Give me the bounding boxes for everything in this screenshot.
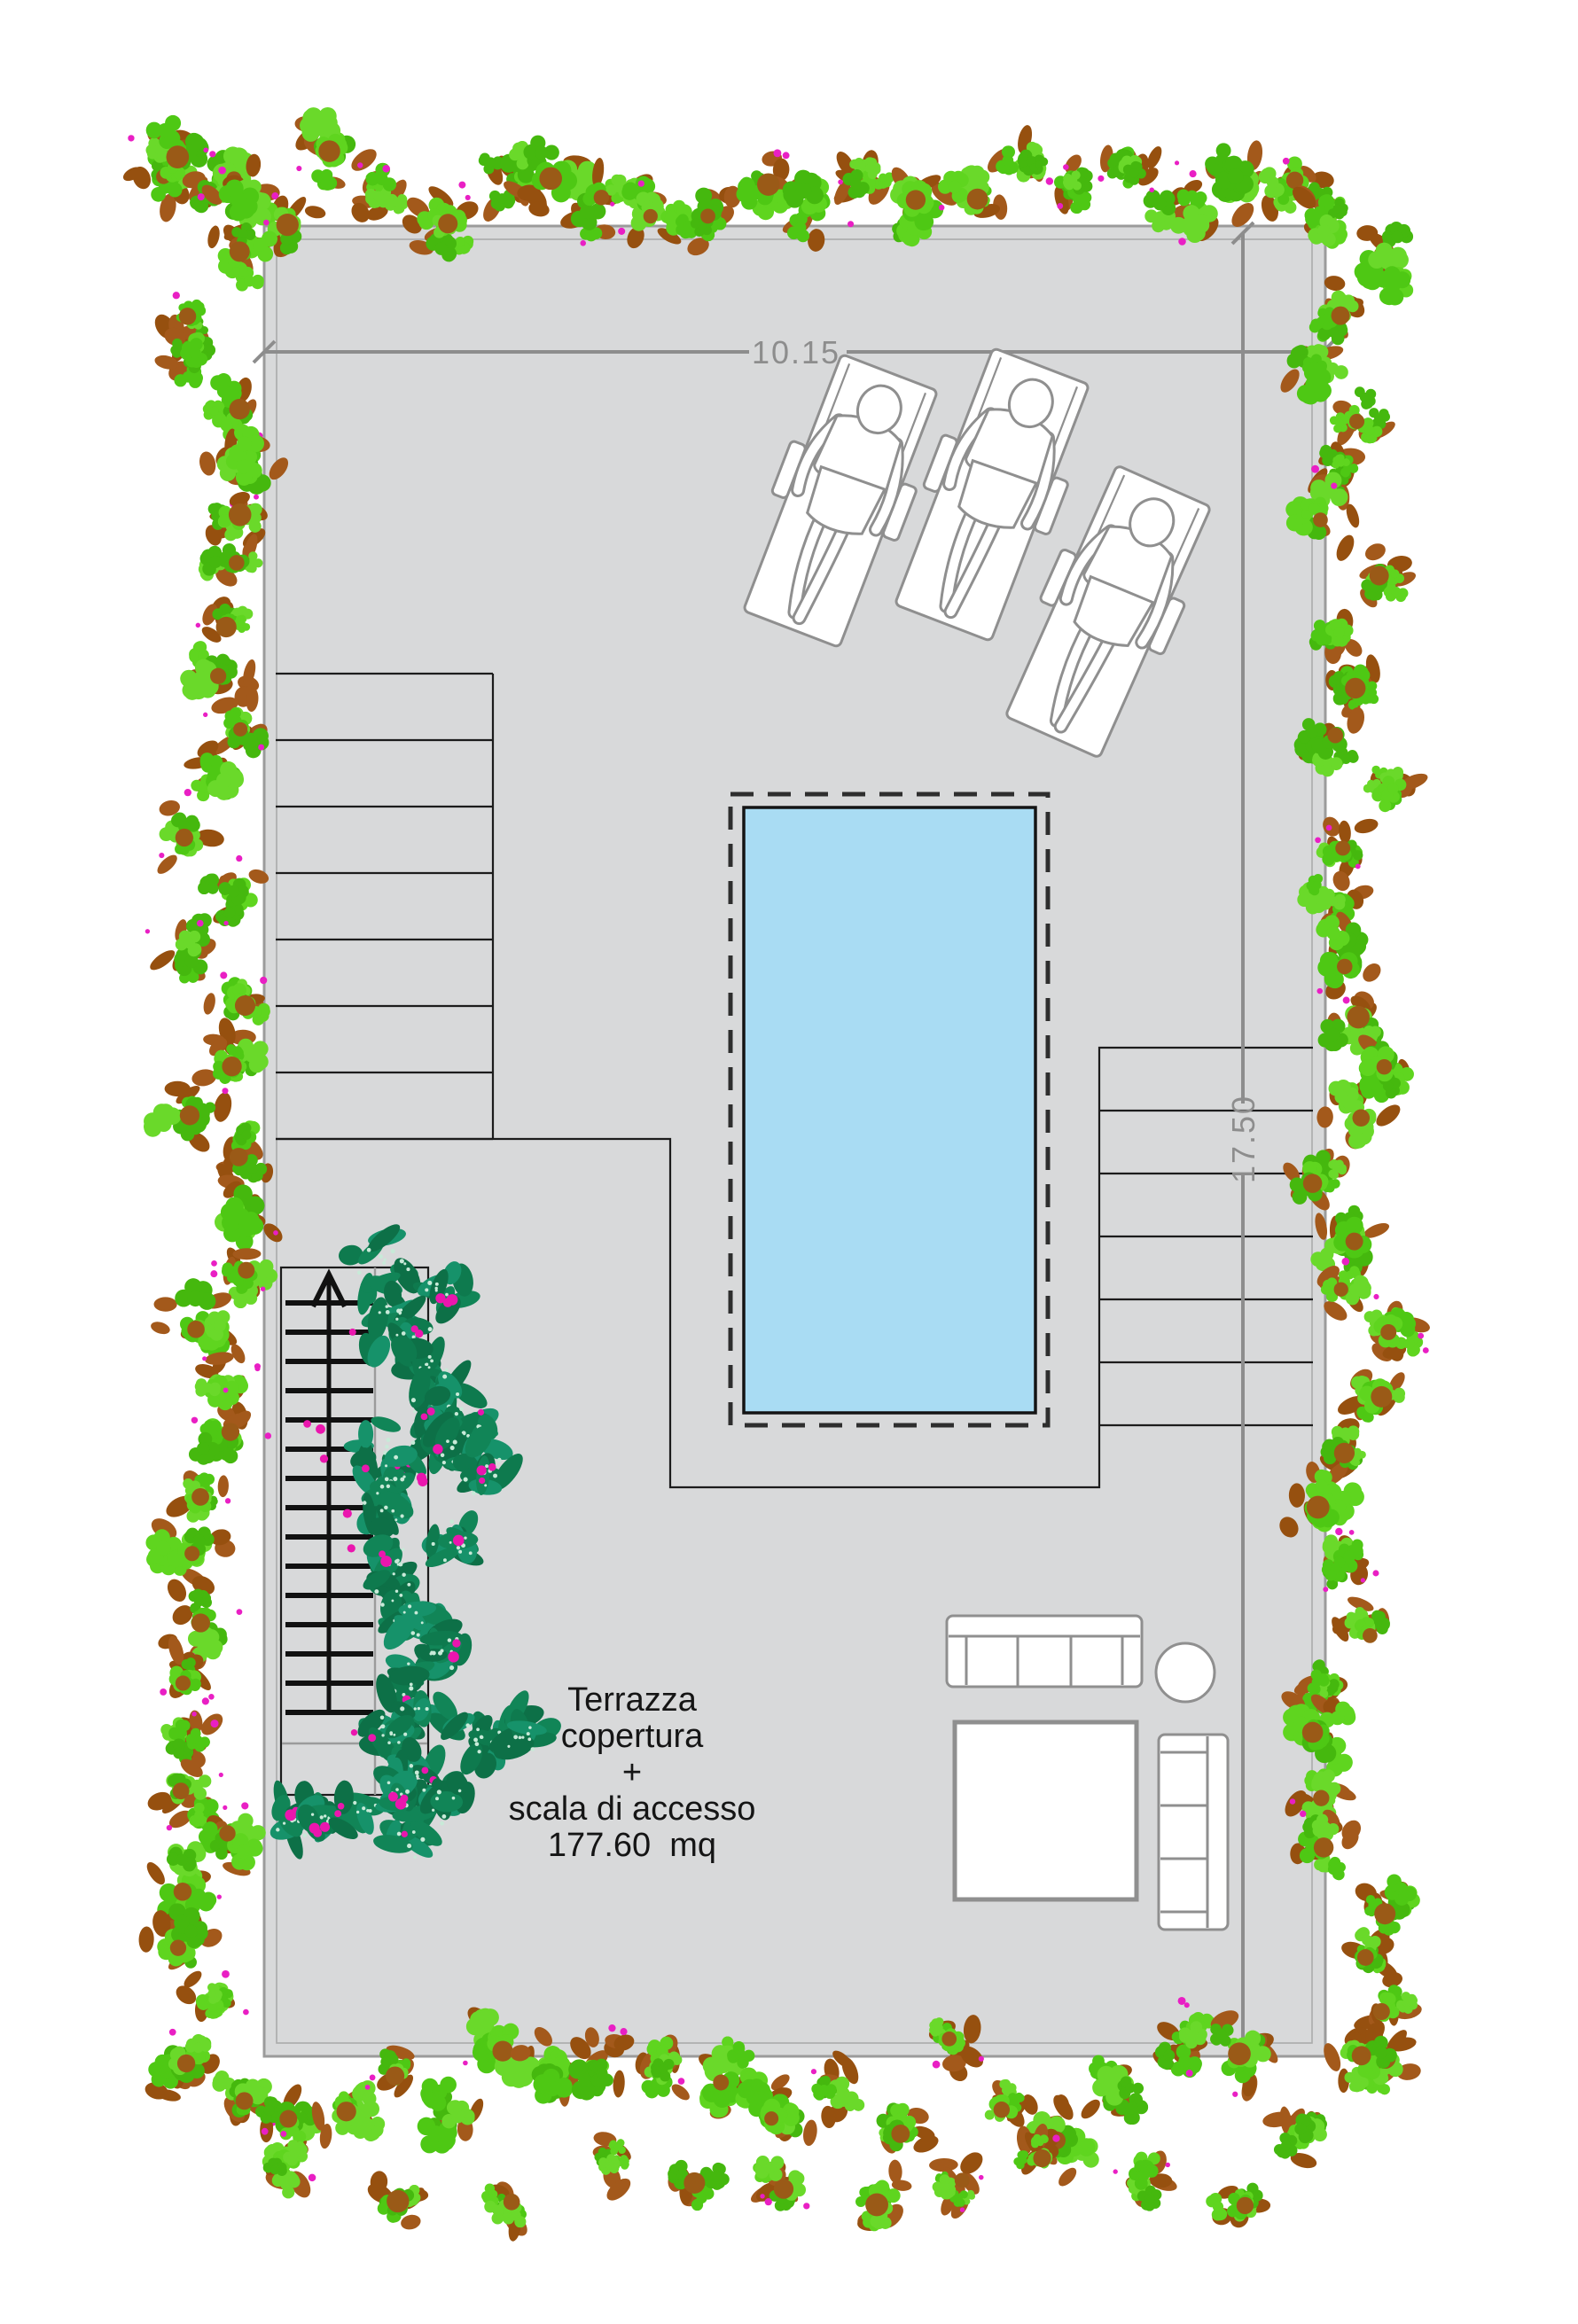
hedge-bush [481, 2179, 531, 2242]
floor-plan-canvas: 10.15 17.50 [0, 0, 1578, 2324]
lounge-furniture [947, 1616, 1228, 1930]
hedge-bush [1352, 1970, 1423, 2033]
caption-line: copertura [561, 1718, 704, 1755]
hedge-bush [748, 2156, 810, 2211]
hedge-bush [1364, 1298, 1432, 1365]
hedge-bush [144, 1081, 234, 1156]
hedge-bush [191, 1016, 269, 1088]
sofa-vertical [1159, 1735, 1228, 1930]
hedge-bush [592, 2130, 634, 2204]
hedge-bush [1013, 2122, 1062, 2178]
hedge-bush [309, 2080, 385, 2149]
hedge-bush [668, 2160, 730, 2211]
hedge-bush [202, 489, 270, 551]
hedge-bush [1335, 1365, 1408, 1423]
hedge-bush [1051, 152, 1104, 215]
hedge-bush [811, 2047, 864, 2129]
hedge-bush [1316, 909, 1384, 1004]
hedge-bush [1206, 2183, 1270, 2232]
hedge-bush [348, 163, 410, 226]
hedge-bush [138, 1903, 225, 1973]
swimming-pool [744, 807, 1035, 1413]
height-dimension-label: 17.50 [1225, 1095, 1262, 1183]
hedge-bush [738, 2071, 819, 2147]
hedge-bush [929, 2148, 987, 2221]
hedge-bush [1330, 386, 1398, 448]
hedge-bush [162, 1467, 230, 1523]
hedge-bush [1355, 222, 1414, 305]
hedge-bush [1262, 2106, 1327, 2172]
hedge-bush [1089, 2055, 1148, 2125]
hedge-bush [145, 1514, 236, 1598]
terrace-floor-plan: 10.15 17.50 [0, 0, 1578, 2324]
hedge-bush [145, 913, 219, 984]
hedge-bush [196, 593, 254, 645]
caption-line: Terrazza [567, 1681, 698, 1719]
hedge-bush [149, 1278, 239, 1359]
hedge-bush [1319, 1532, 1379, 1592]
hedge-bush [262, 2131, 316, 2201]
hedge-bush [1363, 766, 1430, 812]
hedge-bush [855, 2159, 912, 2233]
sofa-horizontal [947, 1616, 1142, 1687]
caption-line: scala di accesso [509, 1790, 756, 1828]
hedge-bush [831, 149, 894, 208]
hedge-bush [364, 2170, 428, 2231]
hedge-bush [1113, 2149, 1178, 2211]
square-daybed [955, 1722, 1137, 1899]
hedge-bush [877, 2102, 941, 2156]
width-dimension-label: 10.15 [752, 334, 840, 370]
hedge-bush [418, 2077, 487, 2154]
pool-area [730, 794, 1048, 1425]
caption-line: + [622, 1754, 642, 1791]
hedge-bush [193, 1342, 261, 1431]
hedge-bush [1356, 540, 1418, 610]
hedge-bush [1098, 144, 1165, 190]
hedge-bush [1328, 1594, 1390, 1644]
caption-line: 177.60 mq [548, 1827, 716, 1864]
round-side-table [1156, 1643, 1215, 1702]
hedge-bush [154, 799, 225, 877]
hedge-bush [938, 165, 1008, 220]
hedge-bush [173, 1968, 249, 2022]
hedge-bush [983, 124, 1053, 185]
hedge-bush [143, 2029, 223, 2103]
